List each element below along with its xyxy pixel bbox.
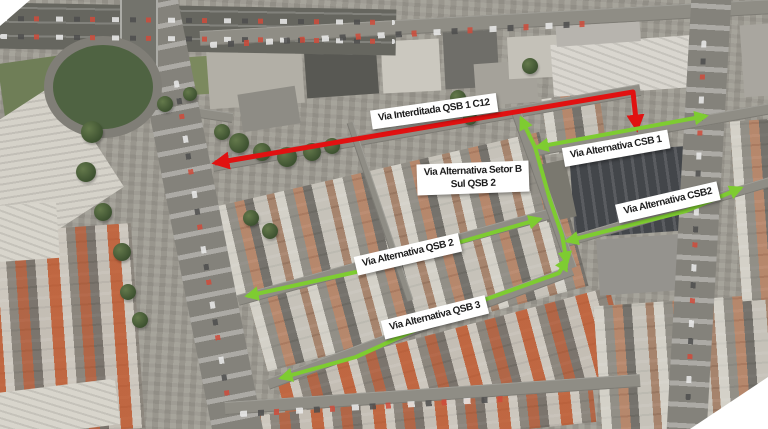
tree-icon: [324, 138, 340, 154]
tree-icon: [157, 96, 173, 112]
tree-icon: [303, 143, 321, 161]
building-roof: [740, 23, 768, 98]
tree-icon: [81, 121, 103, 143]
tree-icon: [113, 243, 131, 261]
tree-icon: [243, 210, 259, 226]
tree-icon: [120, 284, 136, 300]
tree-icon: [253, 143, 271, 161]
tree-icon: [183, 87, 197, 101]
tree-icon: [214, 124, 230, 140]
tree-icon: [262, 223, 278, 239]
tree-icon: [229, 133, 249, 153]
roundabout: [44, 36, 162, 138]
label-via-alternativa-setor-b-sul-qsb2: Via Alternativa Setor BSul QSB 2: [416, 161, 529, 196]
building-roof: [0, 202, 60, 262]
tree-icon: [76, 162, 96, 182]
tree-icon: [94, 203, 112, 221]
aerial-map-figure: Via Interditada QSB 1 C12Via Alternativa…: [0, 0, 768, 429]
tree-icon: [277, 147, 297, 167]
tree-icon: [522, 58, 538, 74]
tree-icon: [132, 312, 148, 328]
